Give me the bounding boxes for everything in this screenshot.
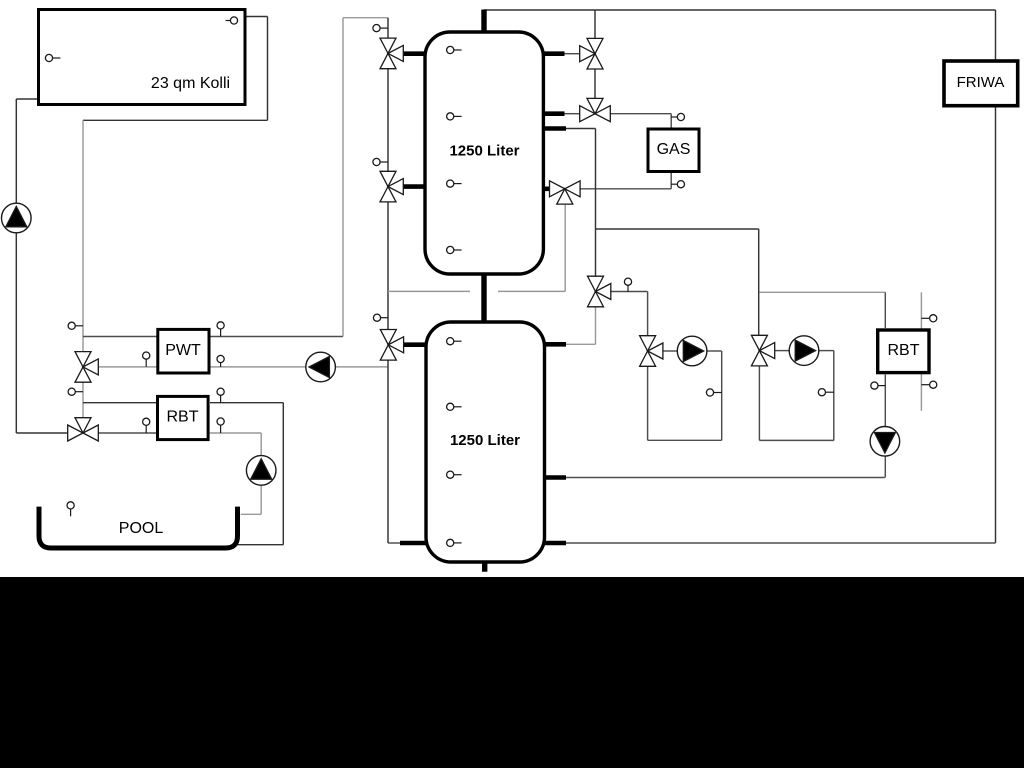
svg-text:1250 Liter: 1250 Liter bbox=[450, 432, 520, 449]
svg-text:FRIWA: FRIWA bbox=[957, 74, 1005, 91]
svg-text:RBT: RBT bbox=[167, 409, 199, 426]
svg-text:1250 Liter: 1250 Liter bbox=[449, 142, 519, 159]
svg-text:23 qm Kolli: 23 qm Kolli bbox=[151, 75, 230, 92]
svg-text:GAS: GAS bbox=[657, 141, 691, 158]
svg-text:POOL: POOL bbox=[119, 520, 164, 537]
svg-text:PWT: PWT bbox=[165, 342, 201, 359]
svg-text:RBT: RBT bbox=[888, 342, 920, 359]
